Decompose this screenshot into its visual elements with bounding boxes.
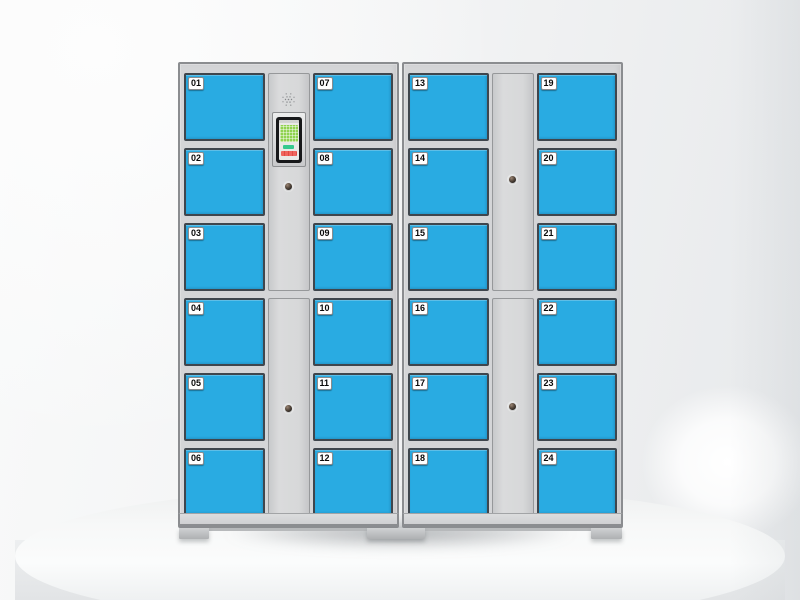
locker-door-08: 08 — [313, 148, 394, 216]
blank-panel-upper — [492, 73, 534, 291]
locker-door-17: 17 — [408, 373, 489, 441]
locker-door-01: 01 — [184, 73, 265, 141]
locker-door-14: 14 — [408, 148, 489, 216]
locker-door-04: 04 — [184, 298, 265, 366]
screen-status-bar — [279, 120, 299, 123]
locker-door-09: 09 — [313, 223, 394, 291]
locker-door-19: 19 — [537, 73, 618, 141]
keyhole-icon — [285, 405, 292, 412]
locker-door-15: 15 — [408, 223, 489, 291]
door-number-badge: 07 — [317, 77, 333, 90]
product-scene: 01 02 03 04 05 06 — [0, 0, 800, 600]
door-number-badge: 06 — [188, 452, 204, 465]
door-number-badge: 23 — [541, 377, 557, 390]
door-number-badge: 08 — [317, 152, 333, 165]
cabinet-unit-2: 13 14 15 16 17 18 19 20 21 22 23 — [402, 62, 623, 528]
door-number-badge: 02 — [188, 152, 204, 165]
door-number-badge: 04 — [188, 302, 204, 315]
locker-door-12: 12 — [313, 448, 394, 516]
keyhole-icon — [509, 176, 516, 183]
locker-door-07: 07 — [313, 73, 394, 141]
door-number-badge: 13 — [412, 77, 428, 90]
door-number-badge: 17 — [412, 377, 428, 390]
control-panel-upper — [268, 73, 310, 291]
door-number-badge: 21 — [541, 227, 557, 240]
door-number-badge: 03 — [188, 227, 204, 240]
door-number-badge: 05 — [188, 377, 204, 390]
locker-door-03: 03 — [184, 223, 265, 291]
locker-door-10: 10 — [313, 298, 394, 366]
locker-door-05: 05 — [184, 373, 265, 441]
cabinet-foot-center — [367, 528, 425, 539]
door-number-badge: 18 — [412, 452, 428, 465]
screen-bezel — [276, 117, 302, 163]
locker-door-13: 13 — [408, 73, 489, 141]
locker-door-02: 02 — [184, 148, 265, 216]
locker-door-21: 21 — [537, 223, 618, 291]
control-panel-lower — [268, 298, 310, 516]
locker-door-24: 24 — [537, 448, 618, 516]
cabinet-unit-1: 01 02 03 04 05 06 — [178, 62, 399, 528]
screen-keypad-grid — [280, 125, 298, 142]
cabinet-foot-right — [591, 528, 622, 539]
screen-green-button — [283, 145, 294, 149]
locker-door-22: 22 — [537, 298, 618, 366]
door-number-badge: 14 — [412, 152, 428, 165]
door-number-badge: 15 — [412, 227, 428, 240]
door-number-badge: 09 — [317, 227, 333, 240]
touchscreen — [272, 112, 306, 167]
door-column-4: 19 20 21 22 23 24 — [537, 73, 618, 516]
screen-display — [279, 120, 299, 160]
door-number-badge: 11 — [317, 377, 333, 390]
cabinet-foot-left — [179, 528, 209, 539]
blank-panel-lower — [492, 298, 534, 516]
locker-door-18: 18 — [408, 448, 489, 516]
locker-door-16: 16 — [408, 298, 489, 366]
door-column-3: 13 14 15 16 17 18 — [408, 73, 489, 516]
door-number-badge: 10 — [317, 302, 333, 315]
locker-door-23: 23 — [537, 373, 618, 441]
door-number-badge: 12 — [317, 452, 333, 465]
door-column-1: 01 02 03 04 05 06 — [184, 73, 265, 516]
door-number-badge: 24 — [541, 452, 557, 465]
door-number-badge: 22 — [541, 302, 557, 315]
door-number-badge: 20 — [541, 152, 557, 165]
door-number-badge: 19 — [541, 77, 557, 90]
door-column-2: 07 08 09 10 11 12 — [313, 73, 394, 516]
keyhole-icon — [509, 403, 516, 410]
speaker-grille-icon — [281, 92, 296, 107]
keyhole-icon — [285, 183, 292, 190]
cabinet-base-kickplate — [178, 513, 399, 526]
control-column — [268, 73, 310, 516]
cabinet-base-kickplate — [402, 513, 623, 526]
door-number-badge: 01 — [188, 77, 204, 90]
door-number-badge: 16 — [412, 302, 428, 315]
locker-door-11: 11 — [313, 373, 394, 441]
smart-locker-cabinet: 01 02 03 04 05 06 — [178, 62, 623, 540]
blank-column — [492, 73, 534, 516]
locker-door-06: 06 — [184, 448, 265, 516]
screen-red-button — [281, 151, 297, 156]
locker-door-20: 20 — [537, 148, 618, 216]
